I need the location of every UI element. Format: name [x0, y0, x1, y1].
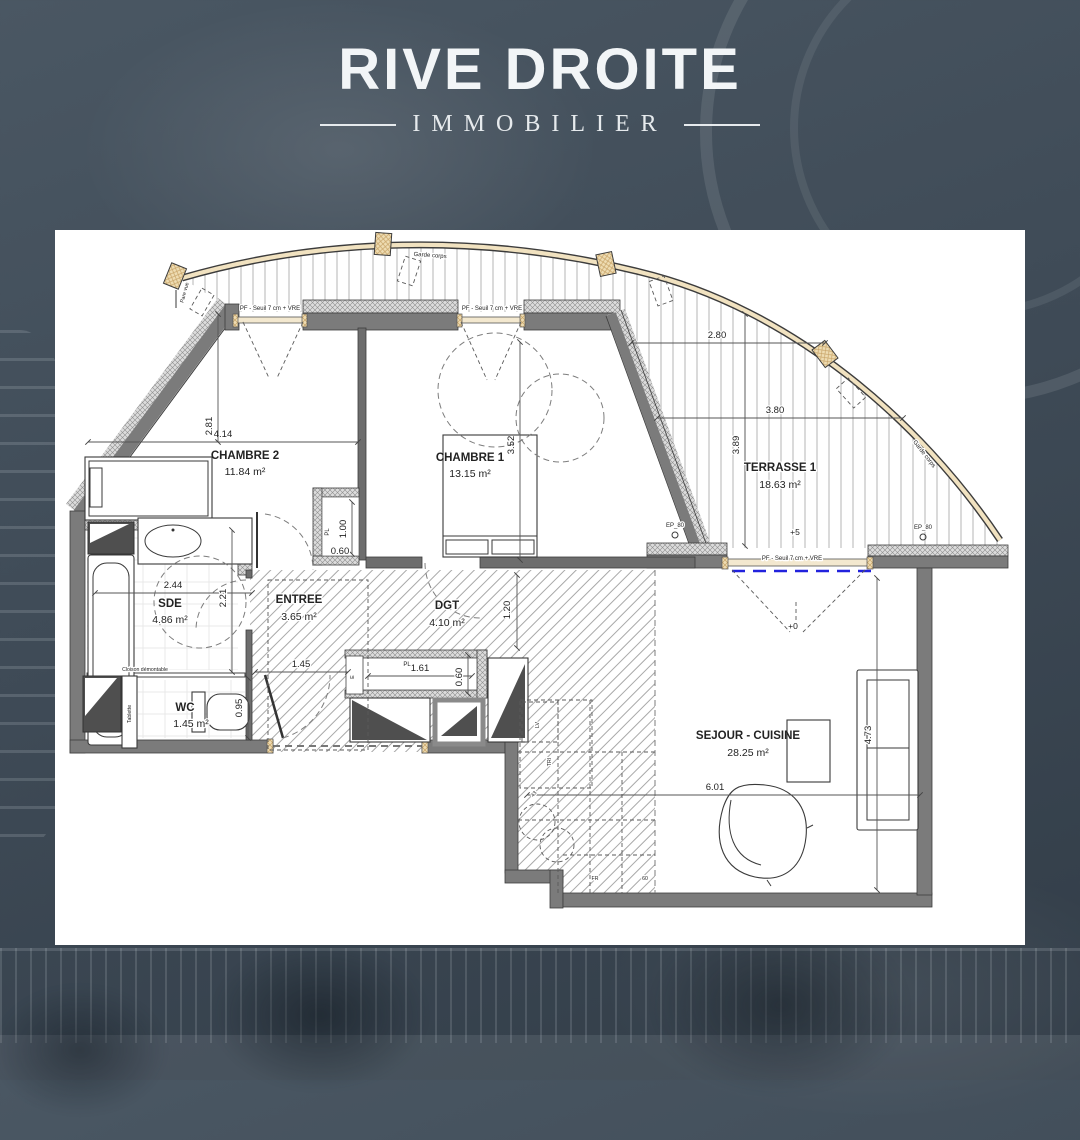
closet-label-pl2: PL — [403, 662, 411, 668]
sink-counter — [138, 518, 252, 564]
closet-label-pl1: PL — [325, 528, 331, 536]
dim-ch2-height: 2.81 — [204, 417, 215, 436]
armchair — [719, 784, 813, 886]
room-label-chambre1: CHAMBRE 1 — [436, 452, 505, 464]
building-floor-decoration — [0, 1035, 1080, 1080]
dim-sde-width: 2.44 — [164, 580, 183, 591]
brand-tagline-row: IMMOBILIER — [0, 111, 1080, 138]
dim-terrasse-w1: 2.80 — [708, 330, 727, 341]
guardrail-post — [374, 232, 391, 255]
cabinet-wedge-wc — [83, 676, 121, 732]
room-area-chambre2: 11.84 m² — [225, 466, 266, 478]
room-label-sde: SDE — [158, 598, 182, 610]
brand-tagline: IMMOBILIER — [412, 111, 667, 138]
dim-sejour-width: 6.01 — [706, 782, 725, 793]
poster-root: { "brand": { "name": "RIVE DROITE", "tag… — [0, 0, 1080, 1080]
electrical-panel-label: E — [350, 675, 356, 679]
room-area-terrasse1: 18.63 m² — [759, 479, 801, 491]
dishwasher-label: LV — [535, 721, 541, 727]
dim-ch1-height: 3.52 — [506, 436, 517, 455]
trash-label: TRI — [547, 758, 553, 766]
brand-name: RIVE DROITE — [0, 36, 1080, 103]
dim-sde-height: 2.21 — [218, 589, 229, 608]
room-label-terrasse1: TERRASSE 1 — [744, 462, 817, 474]
tree-silhouette — [0, 960, 200, 1140]
room-area-dgt: 4.10 m² — [429, 617, 465, 629]
cabinet-wedge-sde — [88, 522, 134, 554]
partition-label: Cloison démontable — [122, 667, 168, 673]
dim-terrasse-w2: 3.80 — [766, 405, 785, 416]
interior-level-label: +0 — [788, 621, 798, 631]
kitchen-60-label: 60 — [642, 876, 648, 882]
logo-rule-right — [684, 124, 760, 126]
bed-chambre2 — [85, 457, 212, 520]
window-threshold-label: PF - Seuil 7 cm + VRE — [240, 306, 300, 312]
privacy-screen-label: Pare vue — [179, 282, 190, 304]
dim-terrasse-h: 3.89 — [731, 436, 742, 455]
room-label-dgt: DGT — [435, 600, 459, 612]
dim-wc-height: 0.95 — [234, 699, 245, 718]
dim-sejour-height: 4.73 — [863, 726, 874, 745]
dim-pl2-depth: 0.60 — [454, 668, 465, 687]
window-threshold-label: PF - Seuil 7 cm + VRE — [762, 556, 822, 562]
drain-label: EP_80 — [666, 523, 685, 529]
room-label-wc: WC — [175, 702, 194, 714]
dim-entree-width: 1.45 — [292, 659, 311, 670]
sofa — [857, 670, 918, 830]
room-area-entree: 3.65 m² — [281, 611, 317, 623]
dim-pl1-width: 0.60 — [331, 546, 350, 557]
logo-rule-left — [320, 124, 396, 126]
dim-pl2-width: 1.61 — [411, 663, 430, 674]
room-area-sde: 4.86 m² — [152, 614, 188, 626]
cabinet-wedge-dgt-2 — [435, 700, 483, 744]
building-railing-decoration — [0, 948, 1080, 1043]
room-label-entree: ENTREE — [276, 594, 323, 606]
floorplan-panel: 4.14 2.81 3.52 2.44 2.21 0.95 1.45 1.20 … — [55, 230, 1025, 945]
dim-dgt-height: 1.20 — [502, 601, 513, 620]
dim-ch2-width: 4.14 — [214, 429, 233, 440]
window-threshold-label: PF - Seuil 7 cm + VRE — [462, 306, 522, 312]
room-label-chambre2: CHAMBRE 2 — [211, 450, 279, 462]
shelf-label: Tablette — [127, 705, 133, 723]
brand-logo: RIVE DROITE IMMOBILIER — [0, 36, 1080, 138]
room-area-wc: 1.45 m² — [173, 718, 209, 730]
dim-pl1-height: 1.00 — [338, 520, 349, 539]
floorplan-drawing: 4.14 2.81 3.52 2.44 2.21 0.95 1.45 1.20 … — [55, 230, 1025, 945]
drain-label: EP_80 — [914, 525, 933, 531]
room-area-chambre1: 13.15 m² — [449, 468, 491, 480]
fridge-label: FR — [592, 876, 599, 882]
room-label-sejour: SEJOUR - CUISINE — [696, 730, 800, 742]
terrace-level-label: +5 — [790, 527, 800, 537]
cabinet-wedge-dgt-1 — [350, 698, 430, 742]
room-area-sejour: 28.25 m² — [727, 747, 769, 759]
